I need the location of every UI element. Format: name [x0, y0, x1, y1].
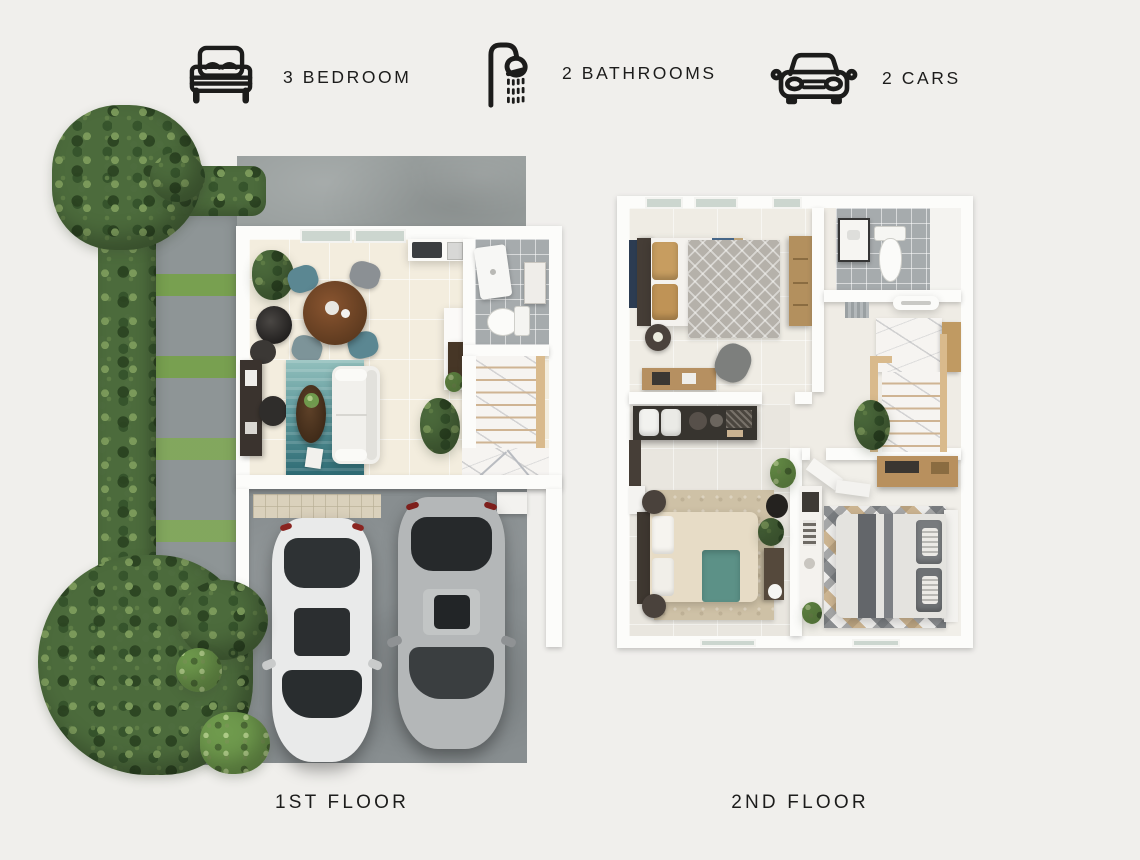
- bedroom3-headboard: [944, 510, 958, 622]
- kitchen-sink: [447, 242, 463, 260]
- tropical-plant: [176, 648, 222, 692]
- feature-bedrooms: 3 BEDROOM: [183, 45, 411, 109]
- master-pillow-2: [652, 284, 678, 320]
- wardrobe-pillow-1: [639, 409, 659, 436]
- stairs2-plant: [854, 400, 890, 450]
- bathroom2-doormat: [845, 302, 869, 318]
- hall-light-tube: [901, 301, 931, 305]
- master-headboard: [637, 238, 651, 326]
- stairs2-rail-right: [940, 334, 947, 452]
- master-desk: [642, 368, 716, 390]
- master-lamp: [653, 332, 663, 342]
- bedroom2-black-pot: [766, 494, 788, 518]
- bedroom3-desk-tray: [931, 462, 949, 474]
- white-car-sunroof: [294, 608, 350, 656]
- feature-bathrooms: 2 BATHROOMS: [476, 38, 717, 108]
- toilet1-tank: [514, 306, 530, 336]
- bedroom3-accent-pillow-2: [922, 576, 938, 604]
- shelf-bowl: [804, 558, 815, 569]
- dining-table: [303, 281, 367, 345]
- shower-water-drops: [507, 78, 525, 104]
- stairs1-landing: [462, 448, 549, 478]
- stairs1-stringer: [536, 356, 545, 448]
- master-desk-laptop: [652, 372, 670, 385]
- second-floor-label: 2ND FLOOR: [680, 792, 920, 814]
- bathroom1-bottom-wall: [463, 345, 549, 356]
- bedroom3-plant: [802, 602, 822, 624]
- desk-notebook: [245, 422, 257, 434]
- master-bottom-wall-stub: [795, 392, 812, 404]
- sofa-back-cushion: [366, 370, 377, 460]
- bed-icon: [183, 45, 259, 109]
- bedroom3-runner-1: [858, 514, 876, 618]
- bedroom2-plant-top: [770, 458, 796, 488]
- kitchen-cooktop: [412, 242, 442, 258]
- gray-car-sunroof: [434, 595, 470, 629]
- bathroom2-sink: [847, 230, 860, 240]
- bedroom3-runner-2: [884, 514, 893, 618]
- white-car: [272, 518, 372, 762]
- console-plant: [445, 372, 463, 392]
- stairs1-treads: [476, 356, 536, 448]
- master-window-2: [694, 197, 738, 209]
- feature-bedrooms-label: 3 BEDROOM: [283, 67, 411, 88]
- wardrobe-wire-basket: [726, 410, 752, 428]
- landing-seam-1: [479, 451, 507, 476]
- feature-bathrooms-label: 2 BATHROOMS: [562, 63, 717, 84]
- bedroom2-nightstand-top: [642, 490, 666, 514]
- master-window-3: [772, 197, 802, 209]
- bedroom3-desk: [877, 456, 958, 487]
- dining-centerpiece: [325, 301, 339, 315]
- master-rug: [688, 240, 780, 338]
- tree-top-lobe: [150, 152, 205, 202]
- car-icon: [770, 50, 858, 106]
- bedroom2-nightstand-bottom: [642, 594, 666, 618]
- bathroom1-left-wall: [463, 239, 475, 353]
- wardrobe-shelf-2: [793, 282, 808, 284]
- stairs2-treads: [882, 372, 940, 452]
- gray-car-rear-glass: [411, 517, 492, 571]
- stairwell-wall: [462, 356, 476, 448]
- dining-cup: [341, 309, 350, 318]
- garage-doormat: [253, 494, 381, 518]
- bedroom2-headboard: [637, 512, 650, 604]
- bathroom1-vanity: [524, 262, 546, 304]
- master-pillow-1: [652, 242, 678, 280]
- bedroom3-top-wall-stub: [802, 448, 810, 460]
- bedroom3-window: [852, 639, 900, 647]
- living-garage-wall: [236, 475, 562, 489]
- bedroom3-bed: [836, 514, 946, 618]
- white-car-windshield: [282, 670, 362, 718]
- shower-icon: [476, 38, 538, 108]
- feature-cars: 2 CARS: [770, 50, 961, 106]
- feature-cars-label: 2 CARS: [882, 68, 961, 89]
- bedroom2-teal-throw: [702, 550, 740, 602]
- gray-car: [398, 497, 505, 749]
- palm-plant: [200, 712, 270, 774]
- magazine: [305, 447, 324, 469]
- wardrobe-shelf-3: [793, 304, 808, 306]
- wardrobe-basket-1: [689, 412, 707, 430]
- bedroom3-desk-monitor: [885, 461, 919, 473]
- first-floor-label: 1ST FLOOR: [222, 792, 462, 814]
- wardrobe-basket-2: [710, 414, 723, 427]
- living-window-2: [354, 229, 406, 243]
- landing-seam-2: [507, 450, 531, 479]
- master-bottom-wall: [629, 392, 762, 404]
- hall-ceiling-light: [893, 296, 939, 310]
- bedroom2-window: [700, 639, 756, 647]
- shower-drain: [490, 269, 497, 276]
- bedroom2-pillow-2: [652, 558, 674, 596]
- master-wardrobe: [789, 236, 812, 326]
- shelf-striped-jar: [803, 520, 816, 546]
- coffee-table: [296, 385, 326, 443]
- bedroom3-shelf: [800, 486, 822, 608]
- wardrobe-shelf-1: [793, 258, 808, 260]
- living-window-1: [300, 229, 352, 243]
- garage-right-wall: [546, 489, 562, 647]
- desk-papers: [245, 370, 257, 386]
- bedroom3-accent-pillow-1: [922, 528, 938, 556]
- bathroom2-vanity: [838, 218, 870, 262]
- wardrobe-pillow-2: [661, 409, 681, 436]
- bedroom2-wardrobe: [633, 406, 757, 440]
- master-nightstand: [645, 324, 671, 351]
- master-window-1: [645, 197, 683, 209]
- stairs2-landing: [876, 318, 942, 372]
- floorplan-poster: 3 BEDROOM 2 BATHROOMS: [0, 0, 1140, 860]
- toilet2-bowl: [879, 238, 902, 282]
- black-side-table: [256, 306, 292, 344]
- coffee-table-plant: [304, 393, 319, 408]
- bedroom2-decor: [768, 584, 782, 599]
- shelf-speaker: [802, 492, 819, 512]
- sofa-seat-seam: [336, 414, 367, 416]
- bedroom2-bed: [650, 512, 758, 602]
- white-car-rear-glass: [284, 538, 360, 588]
- desk-chair: [259, 396, 287, 426]
- gray-car-windshield: [409, 647, 494, 699]
- sofa-armrest-top: [335, 369, 367, 381]
- master-right-wall: [812, 208, 824, 392]
- sofa: [332, 366, 380, 464]
- driveway-concrete: [237, 156, 526, 232]
- garage-stoop: [497, 492, 527, 514]
- stairs2-rail-corner: [870, 356, 892, 363]
- sofa-armrest-bottom: [335, 449, 367, 461]
- stair-side-plant: [420, 398, 460, 454]
- bedroom2-plant-right: [758, 518, 784, 546]
- bathroom2-shower-zone: [930, 208, 961, 290]
- wardrobe-box: [727, 430, 743, 437]
- master-desk-papers: [682, 373, 696, 384]
- bedroom2-pillow-1: [652, 516, 674, 554]
